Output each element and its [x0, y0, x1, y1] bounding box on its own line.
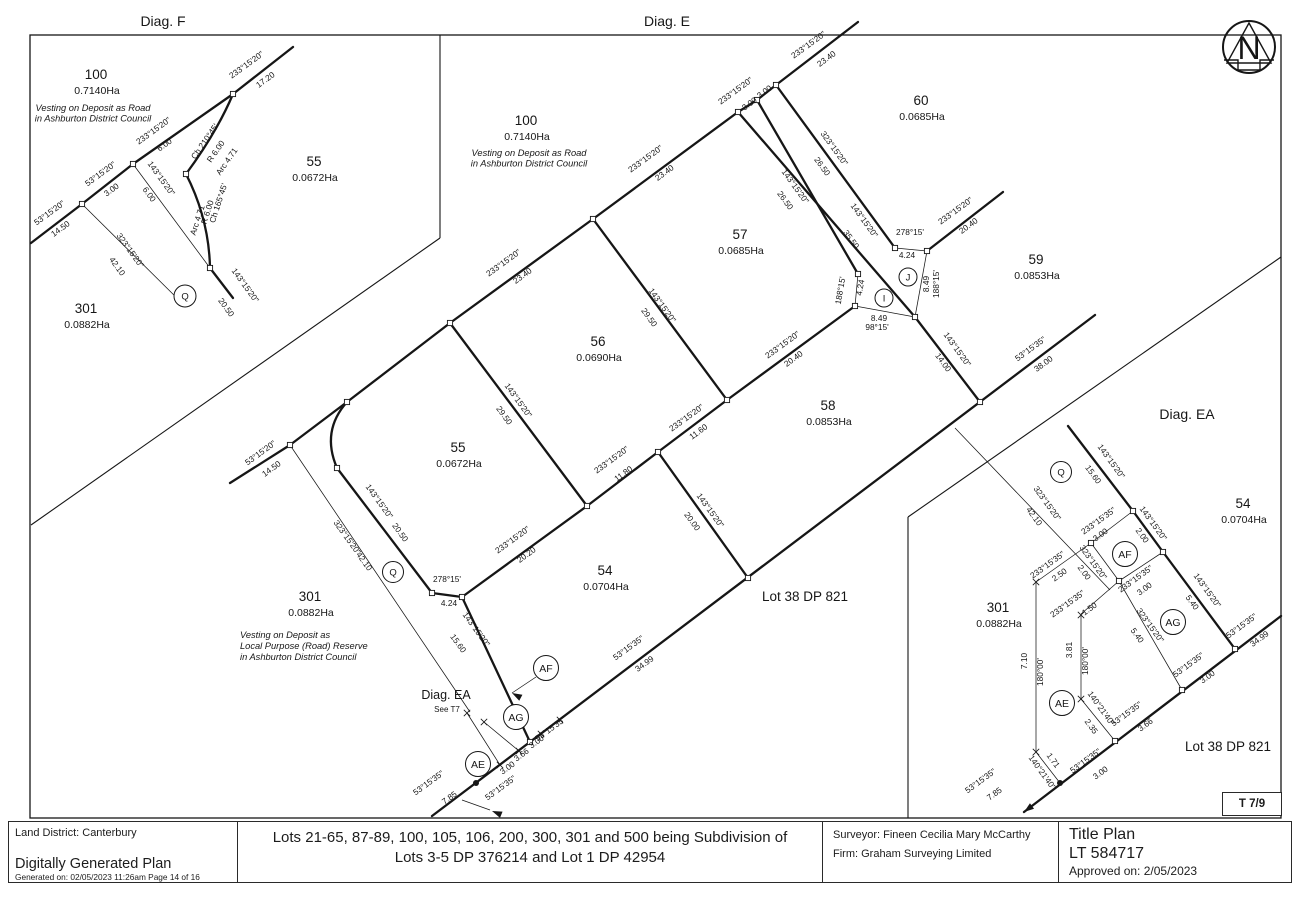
- boundary-peg-dot: [473, 780, 479, 786]
- vesting-note-line: in Ashburton District Council: [35, 114, 152, 124]
- survey-node-marker: [724, 397, 729, 402]
- approved-date: Approved on: 2/05/2023: [1069, 864, 1291, 878]
- survey-node-marker: [429, 590, 434, 595]
- bearing-distance-label: 188°15': [833, 275, 848, 305]
- vesting-note-line: Local Purpose (Road) Reserve: [240, 641, 368, 651]
- bearing-distance-label: 7.85: [985, 785, 1004, 803]
- bearing-distance-label: 20.50: [216, 296, 237, 319]
- bearing-distance-label: 34.99: [1248, 628, 1271, 649]
- circled-letter: J: [906, 272, 911, 283]
- survey-node-marker: [447, 320, 452, 325]
- bearing-distance-label: 3.00: [498, 759, 517, 777]
- vesting-note-line: Vesting on Deposit as: [240, 630, 330, 640]
- bearing-distance-label: 3.81: [1064, 642, 1074, 659]
- boundary-line: [290, 402, 347, 445]
- bearing-distance-label: 4.24: [854, 278, 867, 296]
- bearing-distance-label: 278°15': [433, 574, 461, 584]
- bearing-distance-label: 3.00: [102, 181, 121, 199]
- plan-description-cell: Lots 21-65, 87-89, 100, 105, 106, 200, 3…: [238, 822, 823, 882]
- circled-letter: AE: [471, 759, 485, 771]
- diagram-title: Diag. E: [644, 13, 690, 29]
- bearing-distance-label: 3.00: [1198, 668, 1217, 686]
- survey-node-marker: [852, 303, 857, 308]
- circled-letter: Q: [389, 567, 396, 578]
- bearing-distance-label: 35.50: [841, 228, 862, 251]
- bearing-distance-label: 29.50: [639, 306, 660, 329]
- north-letter: N: [1237, 30, 1260, 66]
- boundary-line: [658, 452, 748, 578]
- lot-area: 0.7140Ha: [504, 131, 550, 143]
- lot-area: 0.0882Ha: [288, 607, 334, 619]
- survey-node-marker: [892, 245, 897, 250]
- bearing-distance-label: 34.99: [633, 653, 656, 674]
- bearing-distance-label: 3.00: [1091, 764, 1110, 782]
- title-block-left-cell: Land District: Canterbury Digitally Gene…: [9, 822, 238, 882]
- bearing-distance-label: 8.49: [921, 276, 931, 293]
- bearing-distance-label: 2.50: [1050, 566, 1069, 584]
- diagram-title: Diag. EA: [1159, 406, 1215, 422]
- circled-letter: AF: [1118, 549, 1131, 561]
- bearing-distance-label: 3.66: [1136, 716, 1155, 734]
- survey-node-marker: [773, 82, 778, 87]
- lot-area: 0.0882Ha: [64, 319, 110, 331]
- dimension-line: [512, 677, 536, 693]
- survey-node-marker: [344, 399, 349, 404]
- bearing-distance-label: 20.40: [782, 348, 805, 369]
- bearing-distance-label: 143°15'20": [230, 266, 262, 304]
- survey-node-marker: [1088, 540, 1093, 545]
- survey-node-marker: [230, 91, 235, 96]
- survey-node-marker: [459, 594, 464, 599]
- lot-area: 0.0704Ha: [583, 581, 629, 593]
- survey-node-marker: [130, 161, 135, 166]
- bearing-distance-label: 323°15'20": [332, 518, 364, 556]
- lot-number: 58: [820, 398, 835, 413]
- lot-number: 59: [1028, 252, 1043, 267]
- plan-title: Title Plan: [1069, 825, 1291, 844]
- plan-description-line1: Lots 21-65, 87-89, 100, 105, 106, 200, 3…: [273, 828, 788, 848]
- diagram-title: Diag. EA: [421, 688, 471, 702]
- circled-letter: Q: [1057, 467, 1064, 478]
- lot-number: 54: [597, 563, 613, 578]
- lot-area: 0.0853Ha: [806, 416, 852, 428]
- lot-area: 0.0882Ha: [976, 618, 1022, 630]
- bearing-distance-label: 11.80: [612, 463, 634, 483]
- circled-letter: AF: [539, 663, 552, 675]
- leader-arrowhead: [510, 690, 522, 701]
- bearing-distance-label: 1.50: [1080, 600, 1099, 618]
- tick-marker: [481, 719, 487, 725]
- boundary-line: [347, 323, 450, 402]
- lot-number: 55: [306, 154, 321, 169]
- lot-number: 54: [1235, 496, 1251, 511]
- bearing-distance-label: 180°00': [1080, 647, 1090, 675]
- parcel-reference-label: Lot 38 DP 821: [762, 589, 848, 604]
- lot-number: 56: [590, 334, 605, 349]
- survey-node-marker: [334, 465, 339, 470]
- land-district: Land District: Canterbury: [15, 827, 137, 839]
- bearing-distance-label: 42.10: [354, 550, 375, 573]
- bearing-distance-label: 5.40: [1129, 626, 1147, 645]
- boundary-line: [432, 593, 462, 597]
- bearing-distance-label: 17.20: [254, 69, 277, 90]
- surveyor-name: Surveyor: Fineen Cecilia Mary McCarthy: [833, 829, 1058, 841]
- circled-letter: I: [883, 293, 886, 304]
- bearing-distance-label: 26.50: [775, 189, 796, 212]
- bearing-distance-label: 15.60: [1083, 463, 1104, 486]
- lot-area: 0.0853Ha: [1014, 270, 1060, 282]
- boundary-line: [757, 100, 858, 274]
- survey-node-marker: [287, 442, 292, 447]
- bearing-distance-label: 23.40: [511, 265, 534, 286]
- diagram-title: Diag. F: [140, 13, 185, 29]
- survey-node-marker: [1232, 646, 1237, 651]
- diagram-title: See T7: [434, 705, 460, 714]
- sheet-reference: T 7/9: [1239, 798, 1265, 810]
- survey-node-marker: [183, 171, 188, 176]
- survey-node-marker: [207, 265, 212, 270]
- parcel-reference-label: Lot 38 DP 821: [1185, 739, 1271, 754]
- bearing-distance-label: 23.40: [653, 162, 676, 183]
- plan-id-cell: Title Plan LT 584717 Approved on: 2/05/2…: [1059, 822, 1291, 882]
- bearing-distance-label: 53°15'35": [411, 768, 446, 797]
- bearing-distance-label: 4.24: [441, 598, 458, 608]
- dimension-line: [462, 800, 490, 810]
- bearing-distance-label: 143°15'20": [364, 482, 396, 520]
- bearing-distance-label: 278°15': [896, 227, 924, 237]
- vesting-note-line: Vesting on Deposit as Road: [36, 103, 152, 113]
- survey-node-marker: [590, 216, 595, 221]
- survey-node-marker: [1130, 508, 1135, 513]
- lot-number: 57: [732, 227, 747, 242]
- survey-node-marker: [584, 503, 589, 508]
- bearing-distance-label: 7.10: [1019, 653, 1029, 670]
- sheet-reference-box: T 7/9: [1222, 792, 1282, 816]
- vesting-note-line: in Ashburton District Council: [471, 159, 588, 169]
- lot-number: 301: [987, 600, 1010, 615]
- survey-plan-page: 53°15'20"14.5053°15'20"3.00233°15'20"6.0…: [0, 0, 1300, 900]
- bearing-distance-label: 15.60: [448, 632, 469, 655]
- lot-number: 55: [450, 440, 465, 455]
- vesting-note-line: in Ashburton District Council: [240, 652, 357, 662]
- survey-node-marker: [855, 271, 860, 276]
- bearing-distance-label: 180°00': [1035, 658, 1045, 686]
- survey-node-marker: [735, 109, 740, 114]
- lot-number: 100: [515, 113, 538, 128]
- bearing-distance-label: 4.24: [899, 250, 916, 260]
- bearing-distance-label: 53°15'35": [483, 773, 518, 802]
- vesting-note-line: Vesting on Deposit as Road: [472, 148, 588, 158]
- bearing-distance-label: 14.50: [49, 218, 72, 239]
- lot-area: 0.0685Ha: [718, 245, 764, 257]
- boundary-line: [210, 268, 233, 298]
- lot-area: 0.0672Ha: [292, 172, 338, 184]
- survey-plan-canvas: 53°15'20"14.5053°15'20"3.00233°15'20"6.0…: [0, 0, 1300, 900]
- bearing-distance-label: 38.00: [1032, 353, 1055, 374]
- bearing-distance-label: 98°15': [865, 322, 889, 332]
- lot-area: 0.0704Ha: [1221, 514, 1267, 526]
- bearing-distance-label: 14.00: [933, 351, 954, 374]
- plan-type: Digitally Generated Plan: [15, 856, 171, 872]
- lot-area: 0.0690Ha: [576, 352, 622, 364]
- bearing-distance-label: 11.60: [687, 421, 709, 441]
- bearing-distance-label: 188°15': [931, 270, 941, 298]
- title-block: Land District: Canterbury Digitally Gene…: [8, 821, 1292, 883]
- lot-number: 301: [299, 589, 322, 604]
- bearing-distance-label: 2.00: [1134, 526, 1152, 545]
- bearing-distance-label: 20.40: [957, 215, 980, 236]
- circled-letter: Q: [181, 291, 188, 302]
- lot-number: 60: [913, 93, 928, 108]
- surveyor-cell: Surveyor: Fineen Cecilia Mary McCarthy F…: [823, 822, 1059, 882]
- lot-area: 0.0685Ha: [899, 111, 945, 123]
- bearing-distance-label: 42.10: [107, 255, 128, 278]
- lot-number: 301: [75, 301, 98, 316]
- bearing-distance-label: 3.66: [512, 746, 531, 764]
- survey-node-marker: [1179, 687, 1184, 692]
- survey-node-marker: [655, 449, 660, 454]
- lot-area: 0.0672Ha: [436, 458, 482, 470]
- lot-number: 100: [85, 67, 108, 82]
- bearing-distance-label: 3.00: [755, 83, 774, 101]
- bearing-distance-label: 5.40: [1184, 593, 1202, 612]
- boundary-line: [450, 323, 587, 506]
- bearing-distance-label: 20.00: [682, 510, 703, 533]
- survey-node-marker: [977, 399, 982, 404]
- leader-arrowhead: [491, 808, 503, 818]
- circled-letter: AG: [1165, 617, 1180, 629]
- survey-node-marker: [745, 575, 750, 580]
- diagram-panel-border: [31, 238, 440, 525]
- generated-timestamp: Generated on: 02/05/2023 11:26am Page 14…: [15, 872, 200, 882]
- surveyor-firm: Firm: Graham Surveying Limited: [833, 848, 1058, 860]
- bearing-distance-label: 6.00: [141, 185, 159, 204]
- lot-area: 0.7140Ha: [74, 85, 120, 97]
- circled-letter: AG: [508, 712, 523, 724]
- bearing-distance-label: 53°15'35": [533, 714, 568, 743]
- bearing-distance-label: 233°15'20": [227, 49, 265, 81]
- survey-node-marker: [912, 314, 917, 319]
- survey-node-marker: [79, 201, 84, 206]
- plan-number: LT 584717: [1069, 844, 1291, 863]
- bearing-distance-label: 20.20: [515, 544, 538, 565]
- bearing-distance-label: 42.10: [1024, 505, 1045, 528]
- survey-node-marker: [924, 248, 929, 253]
- survey-node-marker: [1160, 549, 1165, 554]
- survey-node-marker: [1112, 738, 1117, 743]
- plan-description-line2: Lots 3-5 DP 376214 and Lot 1 DP 42954: [395, 848, 666, 868]
- tick-marker: [464, 710, 470, 716]
- circled-letter: AE: [1055, 698, 1069, 710]
